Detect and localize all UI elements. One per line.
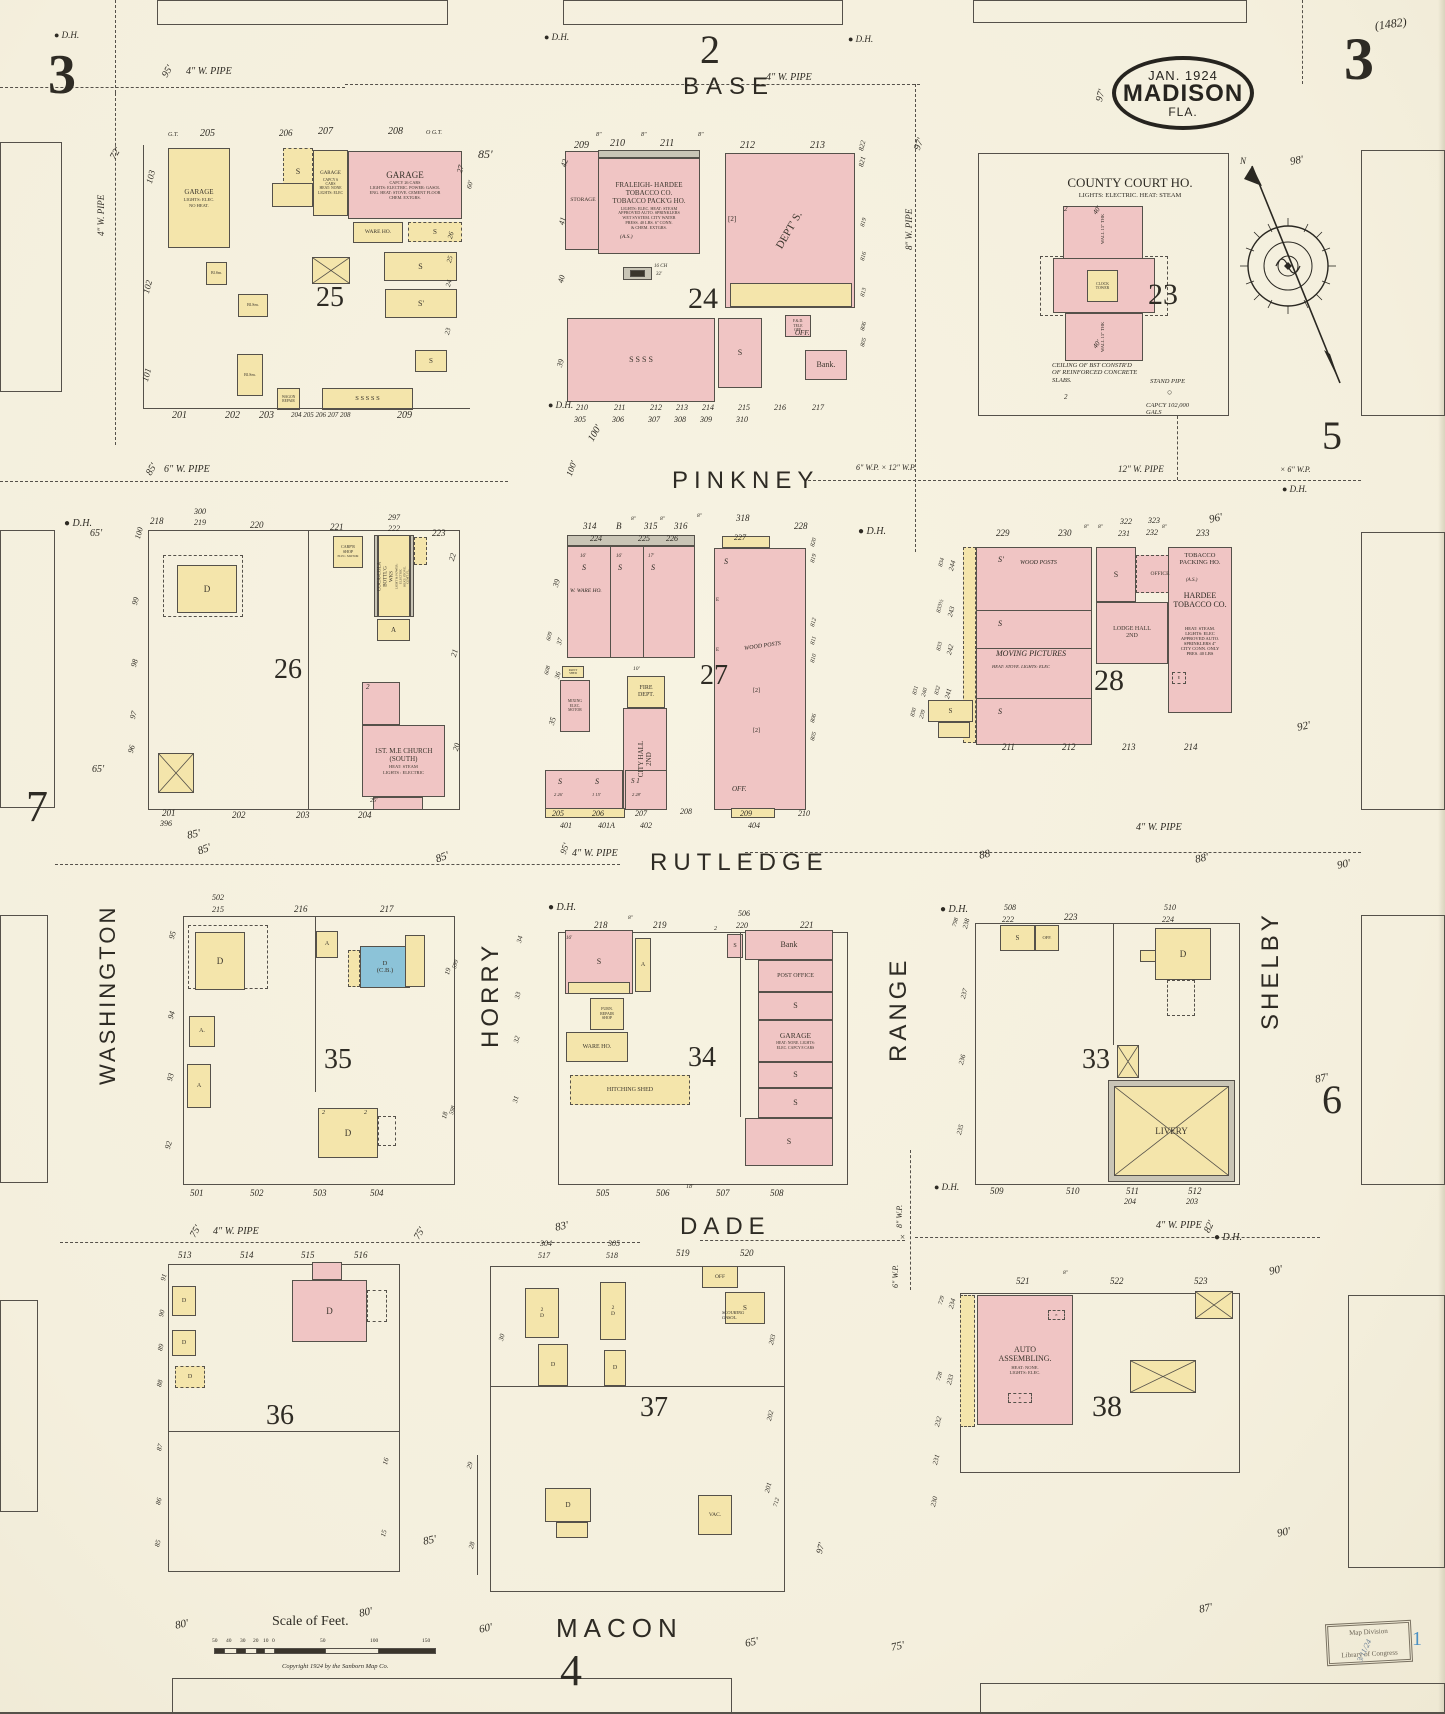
building-clock-tower: CLOCK TOWER [1087, 270, 1118, 302]
map-text: 16' [566, 936, 572, 942]
map-text: 728 [936, 1371, 945, 1381]
building-label: MIXING ELEC. MOTOR [568, 699, 582, 712]
building-label: S [738, 348, 742, 357]
pipe-label: 4" W. PIPE [766, 72, 812, 83]
map-text: 96' [1208, 511, 1224, 526]
map-text: 231 [932, 1454, 942, 1466]
map-building: S [1096, 547, 1136, 602]
map-text: 798 [952, 917, 961, 927]
block-number-34: 34 [688, 1042, 716, 1073]
map-text: 315 [644, 521, 658, 531]
map-text: 231 [1118, 530, 1130, 539]
map-text: 211 [614, 404, 625, 413]
label-main: S' [418, 299, 424, 308]
map-text: 243 [947, 606, 957, 618]
map-text: 75' [412, 1225, 428, 1241]
label-main: GARAGE [318, 171, 343, 177]
map-line [60, 1242, 640, 1243]
building-label: OFF [715, 1274, 725, 1280]
map-text: 85' [422, 1533, 438, 1548]
map-text: 226 [666, 535, 678, 544]
adjacent-block-outline [563, 0, 843, 25]
map-text: 29 [466, 1461, 475, 1470]
label-main: STORAGE [570, 197, 595, 203]
map-building [938, 722, 970, 738]
map-text: 522 [1110, 1276, 1124, 1286]
map-building: S [1000, 925, 1035, 951]
map-text: 216 [774, 404, 786, 413]
map-building: A. [189, 1016, 215, 1047]
map-text: 90' [1336, 857, 1352, 872]
label-main: OFF [715, 1274, 725, 1280]
map-text: 819 [860, 217, 869, 227]
map-text: 217 [380, 904, 394, 914]
building-label: S [793, 1098, 797, 1107]
map-text: WOOD POSTS [1020, 560, 1057, 567]
label-main: D [613, 1365, 617, 1372]
stamp-line1: Map Division [1349, 1627, 1388, 1637]
map-text: 220 [736, 922, 748, 931]
label-main: S S S S [629, 355, 653, 364]
map-text: S [618, 564, 622, 573]
building-label: WARE HO. [365, 229, 391, 235]
map-text: 203 [259, 410, 274, 421]
block-number-35: 35 [324, 1044, 352, 1075]
map-text: 805 [810, 731, 819, 741]
map-text: 402 [640, 822, 652, 831]
map-building: A [377, 619, 410, 641]
map-text: 87' [1198, 1601, 1214, 1616]
map-text: 609 [546, 631, 555, 641]
map-building: D [172, 1330, 196, 1356]
map-building [312, 1262, 342, 1280]
building-label: STORAGE [570, 197, 595, 203]
map-text: 65' [90, 528, 102, 539]
adjacent-sheet-4: 4 [560, 1646, 582, 1695]
map-text: SCOURING GASOL. [722, 1310, 744, 1320]
map-text: 100 [370, 1638, 378, 1644]
map-text: × [900, 1232, 905, 1242]
building-coca-cola-bottling: COCA-COLA BOTTL'G WKSLIGHT & POWER: ELEC… [378, 535, 410, 617]
map-text: 85' [196, 841, 213, 857]
label-main: D [204, 584, 211, 594]
map-text: E [716, 598, 719, 604]
map-text: 32 [513, 1035, 522, 1044]
block-number-25: 25 [316, 282, 344, 313]
building-vacant: VAC. [698, 1495, 732, 1535]
label-main: S [743, 1304, 747, 1312]
map-text: 35 [548, 716, 559, 726]
map-text: 401 [560, 822, 572, 831]
pipe-label: × 6" W.P. [1280, 466, 1311, 475]
map-text: 150 [422, 1638, 430, 1644]
map-text: (A.S.) [620, 234, 633, 240]
block-number-28: 28 [1094, 664, 1124, 698]
building-label: S [787, 1137, 791, 1146]
map-text: 233 [946, 1374, 956, 1386]
scale-title: Scale of Feet. [272, 1614, 349, 1630]
map-text: 224 [1162, 916, 1174, 925]
map-line [915, 1237, 1320, 1238]
sanborn-map-sheet: JAN. 1924 MADISON FLA. [0, 0, 1445, 1714]
compass-north-label: N [1240, 156, 1246, 166]
map-building: E [1172, 672, 1186, 684]
map-text: 97' [814, 1541, 827, 1554]
hydrant-dot: ● D.H. [64, 518, 92, 529]
label-sub: HEAT: NONE. LIGHTS: ELEC. [998, 1365, 1051, 1375]
building-label: Bl.Sm. [247, 303, 259, 308]
map-text: 92 [164, 1140, 175, 1150]
label-main: LODGE HALL 2ND [1113, 626, 1151, 640]
map-text: 85 [154, 1539, 163, 1548]
map-text: 404 [748, 822, 760, 831]
building-label: GARAGEHEAT: NONE. LIGHTS: ELEC. CAPCY 8 … [776, 1032, 815, 1050]
hydrant-dot: ● D.H. [548, 400, 573, 410]
map-text: 98 [130, 658, 141, 668]
building-hitching-shed: HITCHING SHED [570, 1075, 690, 1105]
building-label: E [1055, 1313, 1057, 1317]
cross-mark [1118, 1046, 1138, 1077]
label-main: E [1055, 1313, 1057, 1317]
map-text: S [724, 558, 728, 567]
map-text: 1 15' [592, 792, 601, 797]
map-text: 805 [860, 337, 869, 347]
label-main: A. [199, 1028, 205, 1035]
map-text: (A.S.) [1186, 578, 1197, 584]
map-text: WALL 13" THK [1100, 214, 1105, 244]
label-main: S [433, 228, 437, 236]
map-text: 40 [226, 1638, 232, 1644]
building-label: VAC. [709, 1512, 721, 1518]
map-line [745, 852, 1361, 853]
map-building: D [538, 1344, 568, 1386]
map-line [115, 0, 116, 93]
building-label: S [433, 228, 437, 236]
map-building: WARE HO. [566, 1032, 628, 1062]
block-number-38: 38 [1092, 1390, 1122, 1424]
map-text: 608 [544, 665, 553, 675]
map-text: 508 [770, 1188, 784, 1198]
map-text: 50 [212, 1638, 218, 1644]
map-line [1113, 923, 1114, 1045]
adjacent-sheet-6: 6 [1322, 1078, 1342, 1123]
building-label: Bank [781, 940, 798, 949]
map-text: 203 [1186, 1198, 1198, 1207]
map-text: 95' [558, 842, 571, 856]
map-text: 506 [738, 910, 750, 919]
label-main: D [551, 1362, 555, 1369]
map-building: OFF. [1035, 925, 1059, 951]
map-building: OFF [702, 1266, 738, 1288]
map-text: 517 [538, 1252, 550, 1261]
map-text: 10' [633, 666, 640, 672]
label-main: WARE HO. [583, 1044, 612, 1051]
building-label: S [1114, 570, 1118, 579]
building-label: GARAGELIGHTS: ELEC. NO HEAT. [184, 188, 215, 207]
adjacent-block-outline [1361, 150, 1445, 416]
label-main: CITY HALL 2ND [637, 741, 653, 777]
map-building [414, 537, 427, 565]
pipe-label: 8" W.P. [896, 1205, 905, 1228]
adjacent-block-outline [1348, 1295, 1445, 1568]
adjacent-block-outline [0, 915, 48, 1183]
map-text: 202 [225, 410, 240, 421]
building-post-office: POST OFFICE [758, 960, 833, 992]
map-line [976, 610, 1092, 611]
building-label: 1ST. M.E CHURCH (SOUTH)HEAT: STEAM LIGHT… [375, 747, 433, 774]
map-text: 210 [610, 138, 625, 149]
map-text: 10 [263, 1638, 269, 1644]
street-base: BASE [683, 74, 775, 101]
map-line [55, 864, 620, 865]
label-main: FRALEIGH- HARDEE TOBACCO CO. TOBACCO PAC… [612, 181, 685, 205]
map-building [556, 1522, 588, 1538]
map-text: 503 [313, 1188, 327, 1198]
building-garage-26-cars: GARAGECAPCY 26 CARS LIGHTS: ELECTRIC. PO… [348, 151, 462, 219]
label-main: D [182, 1340, 186, 1347]
map-text: 810 [810, 653, 819, 663]
map-line [740, 932, 741, 1117]
building-label: D [204, 584, 211, 594]
map-text: 203 [296, 810, 310, 820]
pipe-label: 4" W. PIPE [186, 66, 232, 77]
building-label: E [1178, 676, 1180, 681]
building-concrete-block-dwelling: D (C.B.) [360, 946, 410, 988]
building-garage-34: GARAGEHEAT: NONE. LIGHTS: ELEC. CAPCY 8 … [758, 1020, 833, 1062]
adjacent-block-outline [172, 1678, 732, 1714]
map-text: 2 [1064, 394, 1068, 402]
map-text: 521 [1016, 1276, 1030, 1286]
label-main: GARAGE [776, 1032, 815, 1041]
map-building: E [1048, 1310, 1065, 1320]
map-text: 305 [574, 416, 586, 425]
map-text: 8" [1162, 524, 1167, 530]
adjacent-block-outline [0, 1300, 38, 1512]
label-sub: HEAT: NONE. LIGHTS: ELEC. CAPCY 8 CARS [776, 1041, 815, 1050]
building-label: A [391, 626, 396, 634]
map-text: 209 [574, 140, 589, 151]
map-building [960, 1295, 975, 1427]
map-line [808, 480, 1361, 481]
map-text: 37 [556, 637, 565, 646]
map-text: 100' [564, 459, 579, 477]
map-text: 89 [157, 1343, 166, 1352]
map-text: 85' [144, 461, 160, 477]
map-text: 239 [919, 709, 928, 719]
label-main: S [733, 943, 736, 950]
hydrant-dot: ● D.H. [548, 902, 576, 913]
map-building: D [545, 1488, 591, 1522]
label-sub: HEAT: STEAM LIGHTS : ELECTRIC [375, 764, 433, 774]
map-building: D [604, 1350, 626, 1386]
block-number-37: 37 [640, 1392, 668, 1423]
map-text: S [558, 778, 562, 787]
block-number-23: 23 [1148, 278, 1178, 312]
street-pinkney: PINKNEY [672, 468, 819, 495]
label-main: DEPT' S. [774, 210, 806, 252]
map-text: 92' [1296, 719, 1312, 734]
map-text: 206 [279, 128, 293, 138]
map-text: 18' [686, 1184, 693, 1191]
building-label: FIRE DEPT. [638, 685, 654, 699]
building-label: GARAGECAPCY 26 CARS LIGHTS: ELECTRIC. PO… [370, 170, 441, 201]
map-text: 8" [698, 132, 704, 139]
block-number-27: 27 [700, 660, 728, 691]
label-main: 2 D [540, 1307, 544, 1320]
label-main: A [391, 626, 396, 634]
adjacent-block-outline [0, 142, 62, 392]
map-text: 309 [700, 416, 712, 425]
building-label: POST OFFICE [777, 973, 814, 980]
map-building [405, 935, 425, 987]
building-dwelling: D [318, 1108, 378, 1158]
map-text: 821 [858, 156, 868, 168]
map-text: 238 [962, 918, 972, 930]
street-macon: MACON [556, 1614, 683, 1643]
map-line [477, 1455, 478, 1575]
map-building [158, 753, 194, 793]
map-text: 501 [190, 1188, 204, 1198]
map-text: S [998, 708, 1002, 717]
label-main: S [418, 262, 422, 271]
label-main: GARAGE [184, 188, 215, 196]
label-sub: ELEC. MOTOR [337, 555, 358, 559]
label-sub: LIGHTS: ELEC. HEAT: STEAM APPROVED AUTO.… [612, 207, 685, 231]
map-text: [2] [728, 216, 736, 224]
adjacent-block-outline [980, 1683, 1445, 1714]
building-label: LODGE HALL 2ND [1113, 626, 1151, 640]
street-rutledge: RUTLEDGE [650, 850, 829, 877]
pipe-label: 4" W. PIPE [213, 1226, 259, 1237]
building-label-hardee-tobacco: HARDEE TOBACCO CO. [1168, 592, 1232, 610]
map-text: 8" [697, 513, 702, 519]
map-text: 2 [714, 926, 717, 933]
map-building: S' [385, 289, 457, 318]
map-text: 518 [606, 1252, 618, 1261]
map-text: 204 [358, 810, 372, 820]
map-text: 219 [653, 920, 667, 930]
label-main: COCA-COLA BOTTL'G WKS [378, 561, 395, 591]
building-furniture-repair: FURN. REPAIR SHOP [590, 998, 624, 1030]
map-building [1167, 980, 1195, 1016]
map-text: 221 [800, 920, 814, 930]
label-main: S [1114, 570, 1118, 579]
label-main: VAC. [709, 1512, 721, 1518]
map-text: 811 [810, 636, 819, 646]
map-text: 205 [552, 810, 564, 819]
map-building: S [718, 318, 762, 388]
building-blacksmith: Bl.Sm. [206, 262, 227, 285]
building-bank: Bank. [805, 350, 847, 380]
building-wagon-repair: WAGON REPAIR [277, 388, 300, 410]
building-label: LIVERY [1155, 1126, 1188, 1136]
map-building: S [758, 992, 833, 1020]
map-building: S S S S S [322, 388, 413, 410]
map-building [378, 1116, 396, 1146]
map-text: 221 [330, 522, 344, 532]
map-text: 33 [514, 991, 523, 1000]
label-main: D [1180, 949, 1187, 959]
map-text: 307 [648, 416, 660, 425]
map-text: 8" [631, 516, 636, 522]
building-label-moving-pictures: MOVING PICTURES [996, 650, 1066, 659]
map-building [598, 150, 700, 158]
map-text: 228 [794, 521, 808, 531]
building-label: D [182, 1340, 186, 1347]
map-text: 0 [272, 1638, 275, 1644]
map-text: 206 [592, 810, 604, 819]
hydrant-dot: ● D.H. [544, 32, 569, 42]
plate-note: (1482) [1374, 16, 1408, 34]
map-text: [2] [753, 728, 760, 735]
map-text: E [716, 648, 719, 654]
map-building [272, 183, 313, 207]
map-text: 318 [736, 513, 750, 523]
map-building [1140, 950, 1156, 962]
map-text: 236 [958, 1054, 968, 1066]
map-line [1177, 416, 1178, 480]
map-text: 242 [946, 644, 956, 656]
map-text: 217 [812, 404, 824, 413]
pipe-label: 4" W. PIPE [96, 195, 106, 236]
building-label: Bl.Sm. [244, 373, 256, 378]
building-storage: STORAGE [565, 151, 601, 250]
building-label: FURN. REPAIR SHOP [600, 1007, 614, 1021]
label-main: S [738, 348, 742, 357]
map-text: 833 [936, 641, 945, 651]
map-text: 215 [212, 906, 224, 915]
map-text: 87 [156, 1443, 165, 1452]
map-text: 510 [1164, 904, 1176, 913]
map-text: 204 [1124, 1198, 1136, 1207]
building-label: 2 D [611, 1305, 615, 1318]
map-line [490, 1386, 785, 1387]
adjacent-block-outline [157, 0, 448, 25]
street-horry: HORRY [478, 942, 505, 1048]
building-label: D (C.B.) [377, 960, 393, 975]
compass-rose [1238, 158, 1348, 390]
map-city: MADISON [1123, 82, 1243, 106]
label-main: D [182, 1298, 186, 1305]
building-label: S S S S [629, 355, 653, 364]
map-text: 90' [1268, 1263, 1284, 1278]
label-sub: CAPCY 26 CARS LIGHTS: ELECTRIC. POWER: G… [370, 181, 441, 200]
map-building [1117, 1045, 1139, 1078]
map-building: S [758, 1062, 833, 1088]
cross-mark [1196, 1292, 1232, 1318]
map-text: 232 [934, 1416, 944, 1428]
label-main: LIVERY [1155, 1126, 1188, 1136]
map-building [722, 536, 770, 548]
map-text: 31 [512, 1095, 521, 1104]
building-label: S [949, 707, 953, 715]
label-main: PAINT SHED [569, 669, 578, 676]
map-text: 813 [860, 287, 869, 297]
map-text: 39 [552, 578, 563, 588]
map-text: 83' [554, 1219, 570, 1234]
label-main: OFF. [1042, 935, 1051, 940]
building-label: Bank. [817, 360, 836, 369]
building-label: CARP'R SHOPELEC. MOTOR [337, 545, 358, 559]
map-building: S [928, 700, 973, 722]
building-label-tobacco-packing: TOBACCO PACKING HO. [1168, 552, 1232, 567]
label-main: D (C.B.) [377, 960, 393, 975]
label-main: S [1016, 934, 1020, 942]
map-line [308, 530, 309, 810]
map-text: 240 [921, 687, 930, 697]
building-label: D [326, 1306, 333, 1316]
block-number-24: 24 [688, 282, 718, 316]
